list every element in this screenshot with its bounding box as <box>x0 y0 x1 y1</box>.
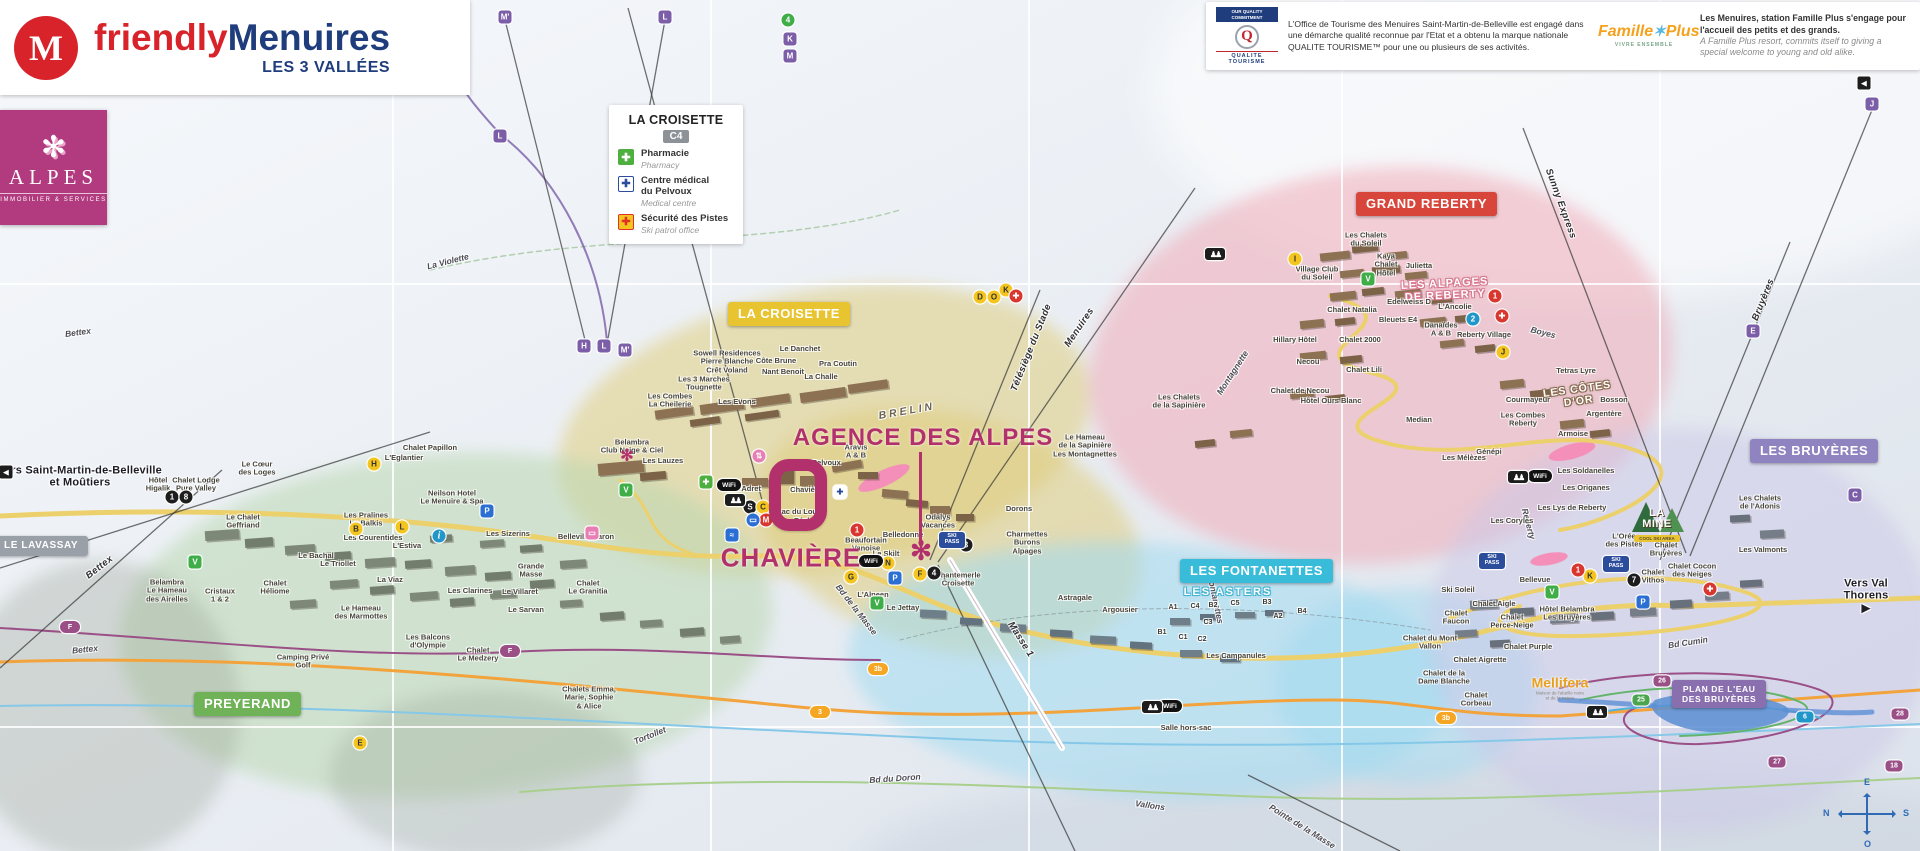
map-marker-o: 3 <box>810 706 830 718</box>
map-label: LES ASTERS <box>1184 586 1273 598</box>
map-label: Les Evons <box>718 398 756 406</box>
map-building <box>858 472 878 479</box>
map-label: Argentère <box>1586 410 1621 418</box>
map-label: Le Jettay <box>887 604 920 612</box>
ski-patrol-cross-icon: ✚ <box>618 214 634 230</box>
map-label: Pra Coutin <box>819 360 857 368</box>
map-label: Chalet Vithos <box>1642 569 1665 586</box>
map-label: Hôtel Belambra Les Bruyères <box>1539 606 1594 623</box>
map-marker-s: V <box>189 556 202 569</box>
map-marker-s: P <box>481 505 494 518</box>
map-label: Chalet de la Dame Blanche <box>1418 670 1470 687</box>
map-label: Kaya Chalet Hôtel <box>1375 252 1398 277</box>
map-marker-s: ≈ <box>726 529 739 542</box>
brand-wordmark: friendlyMenuires <box>94 19 390 56</box>
tourism-office-card: OUR QUALITY COMMITMENT Q QUALITE TOURISM… <box>1206 2 1920 70</box>
map-marker-s: V <box>871 597 884 610</box>
map-building <box>1670 599 1692 608</box>
map-marker-s: M' <box>619 344 632 357</box>
map-marker-sp: SKI PASS <box>939 532 965 548</box>
map-label: C3 <box>1204 619 1213 627</box>
map-building <box>960 617 982 625</box>
map-building <box>245 537 274 548</box>
map-lift-line <box>938 565 1075 851</box>
map-label: Les Combes Reberty <box>1501 412 1546 429</box>
map-label: Chalet Papillon <box>403 444 457 452</box>
legend-item-medical: ✚ Centre médical du PelvouxMedical centr… <box>618 176 734 208</box>
map-label: Bellevue <box>1520 576 1551 584</box>
map-label: Le Sarvan <box>508 606 544 614</box>
map-label: Grande Masse <box>518 563 544 580</box>
map-marker-b: 27 <box>1769 757 1786 768</box>
map-building <box>1455 629 1477 637</box>
map-label: Charmettes Burons Alpages <box>1006 530 1047 555</box>
map-marker-s: M <box>784 50 797 63</box>
map-label: Cristaux 1 & 2 <box>205 588 235 605</box>
map-label: A1 <box>1169 604 1178 612</box>
qualite-q-icon: Q <box>1235 25 1259 49</box>
map-marker-s: K <box>784 33 797 46</box>
agency-highlight-frame <box>769 459 827 531</box>
map-marker-s: C <box>1849 489 1862 502</box>
compass-axis <box>1866 796 1868 832</box>
famille-plus-logo: Famille✶Plus VIVRE ENSEMBLE <box>1598 24 1690 48</box>
map-label: Le Cœur des Loges <box>238 461 275 478</box>
map-label: L'Eglantier <box>385 454 423 462</box>
map-label: Dorons <box>1006 505 1032 513</box>
map-building <box>1760 529 1784 538</box>
map-marker-ar: ◀ <box>0 466 13 479</box>
map-label: Chalet Purple <box>1504 643 1552 651</box>
map-label: Hillary Hôtel <box>1273 336 1317 344</box>
alpes-subtitle: IMMOBILIER & SERVICES <box>0 193 107 203</box>
map-marker-s: P <box>1637 596 1650 609</box>
map-marker-s: E <box>1747 325 1760 338</box>
map-marker-o: 3b <box>868 663 888 675</box>
map-building <box>956 514 974 521</box>
map-label: Edelweiss D <box>1387 298 1431 306</box>
map-marker-c: N <box>882 557 895 570</box>
map-road <box>520 778 1920 799</box>
map-building <box>370 585 394 595</box>
map-marker-s: M' <box>499 11 512 24</box>
map-label: Chalet Bruyères <box>1650 542 1683 559</box>
map-label: Vers Val Thorens ▶ <box>1839 578 1893 615</box>
map-label: C4 <box>1191 603 1200 611</box>
map-label: Chantemerle Croisette <box>935 572 980 589</box>
map-label: Danaïdes A & B <box>1424 322 1457 339</box>
map-building <box>1130 641 1152 649</box>
alpes-agency-logo-card: ✻ ALPES IMMOBILIER & SERVICES <box>0 110 107 225</box>
map-label: L'Ancolie <box>1438 303 1471 311</box>
map-label: Les Origanes <box>1562 484 1610 492</box>
map-label: Hôtel Ours Blanc <box>1301 397 1362 405</box>
map-label: Odalys Vacances <box>921 514 955 531</box>
map-label: Necou <box>1297 358 1320 366</box>
map-marker-c: E <box>354 737 367 750</box>
map-marker-c: 8 <box>180 491 193 504</box>
map-label: Median <box>1406 416 1432 424</box>
map-marker-s: ▭ <box>586 527 599 540</box>
map-marker-c: 1 <box>166 491 179 504</box>
map-marker-s: ✚ <box>700 476 713 489</box>
map-building <box>1170 618 1190 625</box>
map-marker-b: 28 <box>1892 709 1909 720</box>
map-label: Les Soldanelles <box>1558 467 1615 475</box>
chaviere-headline: CHAVIÈRE <box>721 543 861 574</box>
map-marker-c: ⇅ <box>753 450 766 463</box>
map-marker-s: V <box>620 484 633 497</box>
map-marker-c: K <box>1584 570 1597 583</box>
map-label: Les Coryles <box>1491 517 1534 525</box>
map-lift-line <box>505 20 586 344</box>
map-label: Le Danchet <box>780 345 820 353</box>
map-marker-o: F <box>500 645 520 657</box>
map-label: Chalet Natalia <box>1327 306 1377 314</box>
map-lift-line <box>938 188 1195 562</box>
map-marker-fl: ✻ <box>621 449 634 462</box>
map-label: C1 <box>1179 634 1188 642</box>
map-label: Les Campanules <box>1206 652 1266 660</box>
map-marker-fam: ♟♟ <box>725 494 745 506</box>
map-label: Chalet du Mont Vallon <box>1403 635 1457 652</box>
friendly-menuires-logo-card: M friendlyMenuires LES 3 VALLÉES <box>0 0 470 95</box>
map-label: Chalet Aigle <box>1472 600 1515 608</box>
map-label: Chalet Cocon des Neiges <box>1668 563 1716 580</box>
map-label: Chalet Aigrette <box>1453 656 1506 664</box>
map-label: Le Villaret <box>502 588 538 596</box>
map-marker-fam: ♟♟ <box>1142 701 1162 713</box>
map-label: Vers Saint-Martin-de-Belleville et Moûti… <box>0 465 162 490</box>
map-label: Chalets Emma, Marie, Sophie & Alice <box>562 685 616 710</box>
map-marker-s: L <box>494 130 507 143</box>
brand-tagline: LES 3 VALLÉES <box>94 59 390 77</box>
qualite-tourisme-logo: OUR QUALITY COMMITMENT Q QUALITE TOURISM… <box>1216 7 1278 65</box>
map-marker-sp: SKI PASS <box>1479 553 1505 569</box>
map-marker-s: P <box>889 572 902 585</box>
map-label: Côte Brune <box>756 357 796 365</box>
map-label: Julietta <box>1406 262 1432 270</box>
map-marker-c: 1 <box>851 524 864 537</box>
map-label: Chalet Lodge Pure Valley <box>172 477 220 494</box>
resort-map-stage: Sowell Residences Pierre Blanche Crêt Vo… <box>0 0 1920 851</box>
map-building <box>1180 650 1202 657</box>
famille-plus-text: Les Menuires, station Famille Plus s'eng… <box>1700 13 1910 59</box>
la-mine-text: LAMINE <box>1628 508 1686 530</box>
map-label: A2 <box>1274 613 1283 621</box>
map-label: Camping Privé Golf <box>277 654 330 671</box>
snowflake-icon: ✻ <box>41 133 66 163</box>
map-label: Le Hameau de la Sapinière Les Montagnett… <box>1053 433 1117 458</box>
map-label: Le Chalet Geffriand <box>226 514 260 531</box>
map-marker-ar: ◀ <box>1858 77 1871 90</box>
map-label: Les Clarines <box>448 587 493 595</box>
map-label: Les Chalets du Soleil <box>1345 232 1387 249</box>
map-label: Belambra Le Hameau des Airelles <box>146 578 188 603</box>
map-label: Neilson Hotel Le Menuire & Spa <box>421 490 484 507</box>
map-building <box>1235 612 1255 618</box>
map-marker-c: 4 <box>782 14 795 27</box>
map-label: Village Club du Soleil <box>1296 266 1339 283</box>
map-marker-c: 1 <box>1572 564 1585 577</box>
district-banner: LES FONTANETTES <box>1180 559 1333 583</box>
map-marker-c: S <box>744 501 757 514</box>
map-label: Chalet Faucon <box>1443 610 1470 627</box>
map-building <box>1740 579 1762 587</box>
map-marker-c: B <box>350 523 363 536</box>
map-label: L'Estiva <box>393 542 421 550</box>
grid-reference-badge: C4 <box>663 130 689 143</box>
map-label: Sowell Residences Pierre Blanche Crêt Vo… <box>693 349 761 374</box>
map-building <box>680 627 704 637</box>
map-label: Les Balcons d'Olympie <box>406 634 450 651</box>
map-label: B3 <box>1263 599 1272 607</box>
map-label: Armoise <box>1558 430 1588 438</box>
map-label: Les Valmonts <box>1739 546 1787 554</box>
map-label: Les Chalets de l'Adonis <box>1739 495 1781 512</box>
map-lift-line <box>1690 110 1872 556</box>
agency-headline: AGENCE DES ALPES <box>793 424 1054 452</box>
legend-item-pharmacy: ✚ PharmaciePharmacy <box>618 149 734 170</box>
map-label: Hôtel Higalik <box>146 477 171 494</box>
map-label: Chalet de Necou <box>1271 387 1330 395</box>
map-marker-c: ▭ <box>747 514 760 527</box>
map-building <box>920 609 946 618</box>
map-marker-s: L <box>659 11 672 24</box>
map-label: B2 <box>1209 602 1218 610</box>
district-banner: GRAND REBERTY <box>1356 192 1497 216</box>
map-label: Chalet Héliome <box>260 580 289 597</box>
map-label: Bleuets E4 <box>1379 316 1417 324</box>
map-marker-c: C <box>757 501 770 514</box>
map-label: Ski Soleil <box>1441 586 1474 594</box>
legend-card: LA CROISETTE C4 ✚ PharmaciePharmacy ✚ Ce… <box>609 105 743 244</box>
map-label: Tetras Lyre <box>1556 367 1596 375</box>
map-label: Le Hameau des Marmottes <box>335 605 388 622</box>
legend-title: LA CROISETTE <box>618 113 734 127</box>
map-label: Les Lauzes <box>643 457 683 465</box>
la-mine-logo: LAMINE COOL SKI AREA <box>1628 494 1686 542</box>
map-marker-i: i <box>433 530 446 543</box>
map-label: B4 <box>1298 608 1307 616</box>
map-building <box>1050 629 1072 637</box>
map-label: Les Chalets de la Sapinière <box>1153 394 1206 411</box>
map-label: La Viaz <box>377 576 403 584</box>
la-mine-banner: COOL SKI AREA <box>1634 535 1680 542</box>
map-marker-sp: SKI PASS <box>1603 556 1629 572</box>
map-marker-b: 6 <box>1797 712 1814 723</box>
map-label: Astragale <box>1058 594 1092 602</box>
map-label: Reberty Village <box>1457 331 1511 339</box>
star-icon: ✶ <box>1653 23 1666 40</box>
map-marker-o: 3b <box>1436 712 1456 724</box>
map-marker-w: WiFi <box>859 555 883 567</box>
map-marker-o: F <box>60 621 80 633</box>
map-label: Chalet 2000 <box>1339 336 1381 344</box>
map-building <box>1630 607 1656 616</box>
map-marker-c: 2 <box>1467 313 1480 326</box>
tourism-office-text: L'Office de Tourisme des Menuires Saint-… <box>1288 19 1588 53</box>
alpes-name: ALPES <box>9 165 98 190</box>
map-marker-b: 26 <box>1654 676 1671 687</box>
map-label: Chalet Le Medzery <box>458 647 499 664</box>
map-marker-c: ✚ <box>1704 583 1717 596</box>
map-marker-fam: ♟♟ <box>1587 706 1607 718</box>
map-building <box>720 635 740 643</box>
map-label: Les Lys de Reberty <box>1538 504 1607 512</box>
map-label: Les Sizerins <box>486 530 530 538</box>
map-building <box>1090 635 1116 644</box>
map-marker-s: V <box>1546 586 1559 599</box>
map-marker-c: ✚ <box>1010 290 1023 303</box>
map-marker-w: WiFi <box>1528 470 1552 482</box>
map-marker-c: H <box>368 458 381 471</box>
map-marker-s: L <box>598 340 611 353</box>
menuires-m-icon: M <box>14 16 78 80</box>
map-label: Les Mélèzes <box>1442 454 1486 462</box>
district-banner: PLAN DE L'EAU DES BRUYÈRES <box>1672 680 1766 708</box>
map-marker-c: J <box>1497 346 1510 359</box>
map-marker-c: 4 <box>928 567 941 580</box>
map-marker-b: 25 <box>1633 695 1650 706</box>
map-label: Les 3 Marches Tougnette <box>678 376 730 393</box>
district-banner: LE LAVASSAY <box>0 536 88 556</box>
district-banner: LA CROISETTE <box>728 302 850 326</box>
map-label: Nant Benoit <box>762 368 804 376</box>
map-label: Chalet Le Granitia <box>568 580 607 597</box>
map-label: Chalet Perce-Neige <box>1490 614 1533 631</box>
map-marker-s: ✚ <box>834 486 847 499</box>
district-banner: LES BRUYÈRES <box>1750 439 1878 463</box>
map-marker-c: I <box>1289 253 1302 266</box>
map-label: Chalet Lili <box>1346 366 1382 374</box>
agency-pointer-line <box>919 452 922 542</box>
map-label: C2 <box>1198 636 1207 644</box>
mellifera-logo: Mellifera Maison de l'abeille noire et d… <box>1532 675 1589 702</box>
map-marker-c: ✚ <box>1496 310 1509 323</box>
map-label: Bosson <box>1600 396 1628 404</box>
map-marker-fam: ♟♟ <box>1508 471 1528 483</box>
map-marker-c: L <box>396 521 409 534</box>
map-marker-c: 1 <box>1489 290 1502 303</box>
map-building <box>1730 514 1750 522</box>
map-marker-s: V <box>1362 273 1375 286</box>
map-marker-c: D <box>974 291 987 304</box>
map-label: Argousier <box>1102 606 1137 614</box>
map-label: Salle hors-sac <box>1161 724 1212 732</box>
map-marker-b: 18 <box>1886 761 1903 772</box>
map-label: Chalet Corbeau <box>1461 692 1491 709</box>
map-marker-s: H <box>578 340 591 353</box>
map-marker-c: 7 <box>1628 574 1641 587</box>
map-marker-c: F <box>914 568 927 581</box>
map-marker-s: J <box>1866 98 1879 111</box>
pharmacy-cross-icon: ✚ <box>618 149 634 165</box>
map-marker-c: O <box>988 291 1001 304</box>
map-marker-fam: ♟♟ <box>1205 248 1225 260</box>
map-marker-fl: ✻ <box>915 545 928 558</box>
map-label: Les Combes La Cheilerie <box>648 393 693 410</box>
medical-cross-icon: ✚ <box>618 176 634 192</box>
legend-item-ski-patrol: ✚ Sécurité des PistesSki patrol office <box>618 214 734 235</box>
district-banner: PREYERAND <box>194 692 301 716</box>
map-building <box>600 611 624 621</box>
map-label: La Challe <box>804 373 837 381</box>
map-label: B1 <box>1158 629 1167 637</box>
map-label: C5 <box>1231 600 1240 608</box>
map-building <box>450 597 474 607</box>
map-marker-w: WiFi <box>717 479 741 491</box>
map-label: Le Triollet <box>320 560 355 568</box>
